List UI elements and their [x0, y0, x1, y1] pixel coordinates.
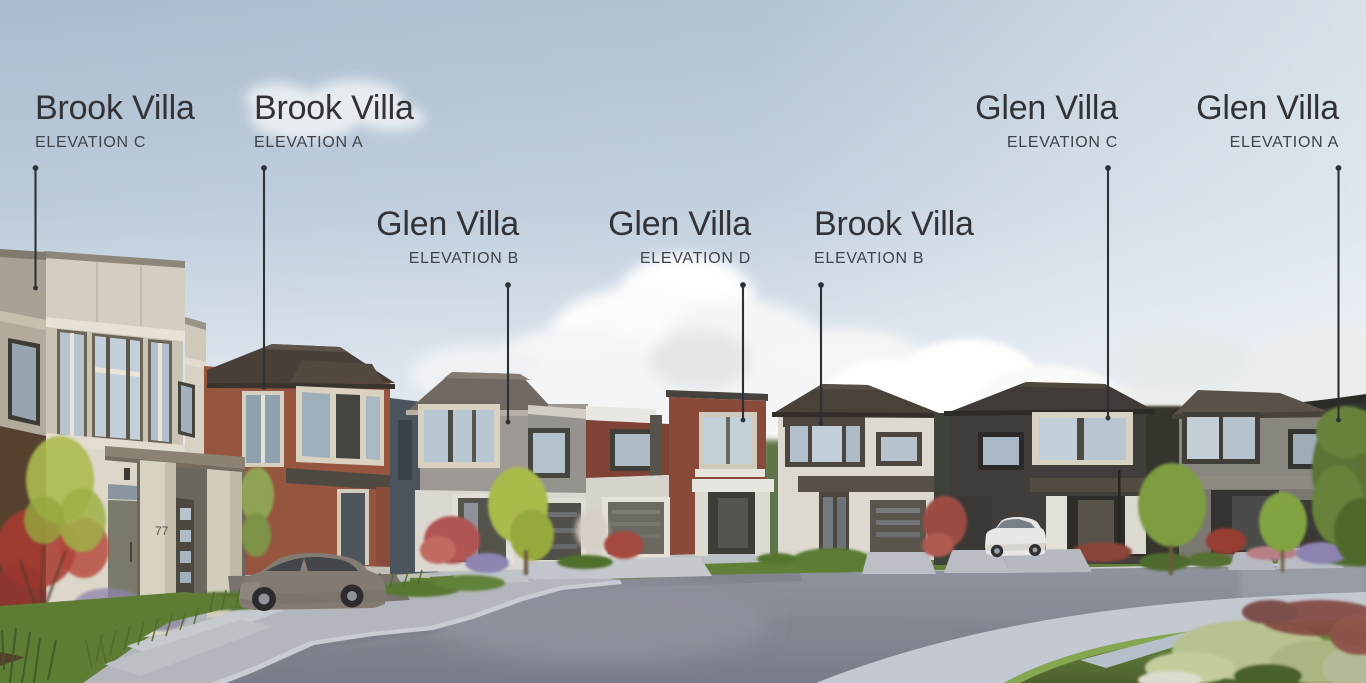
svg-text:77: 77	[155, 524, 169, 538]
